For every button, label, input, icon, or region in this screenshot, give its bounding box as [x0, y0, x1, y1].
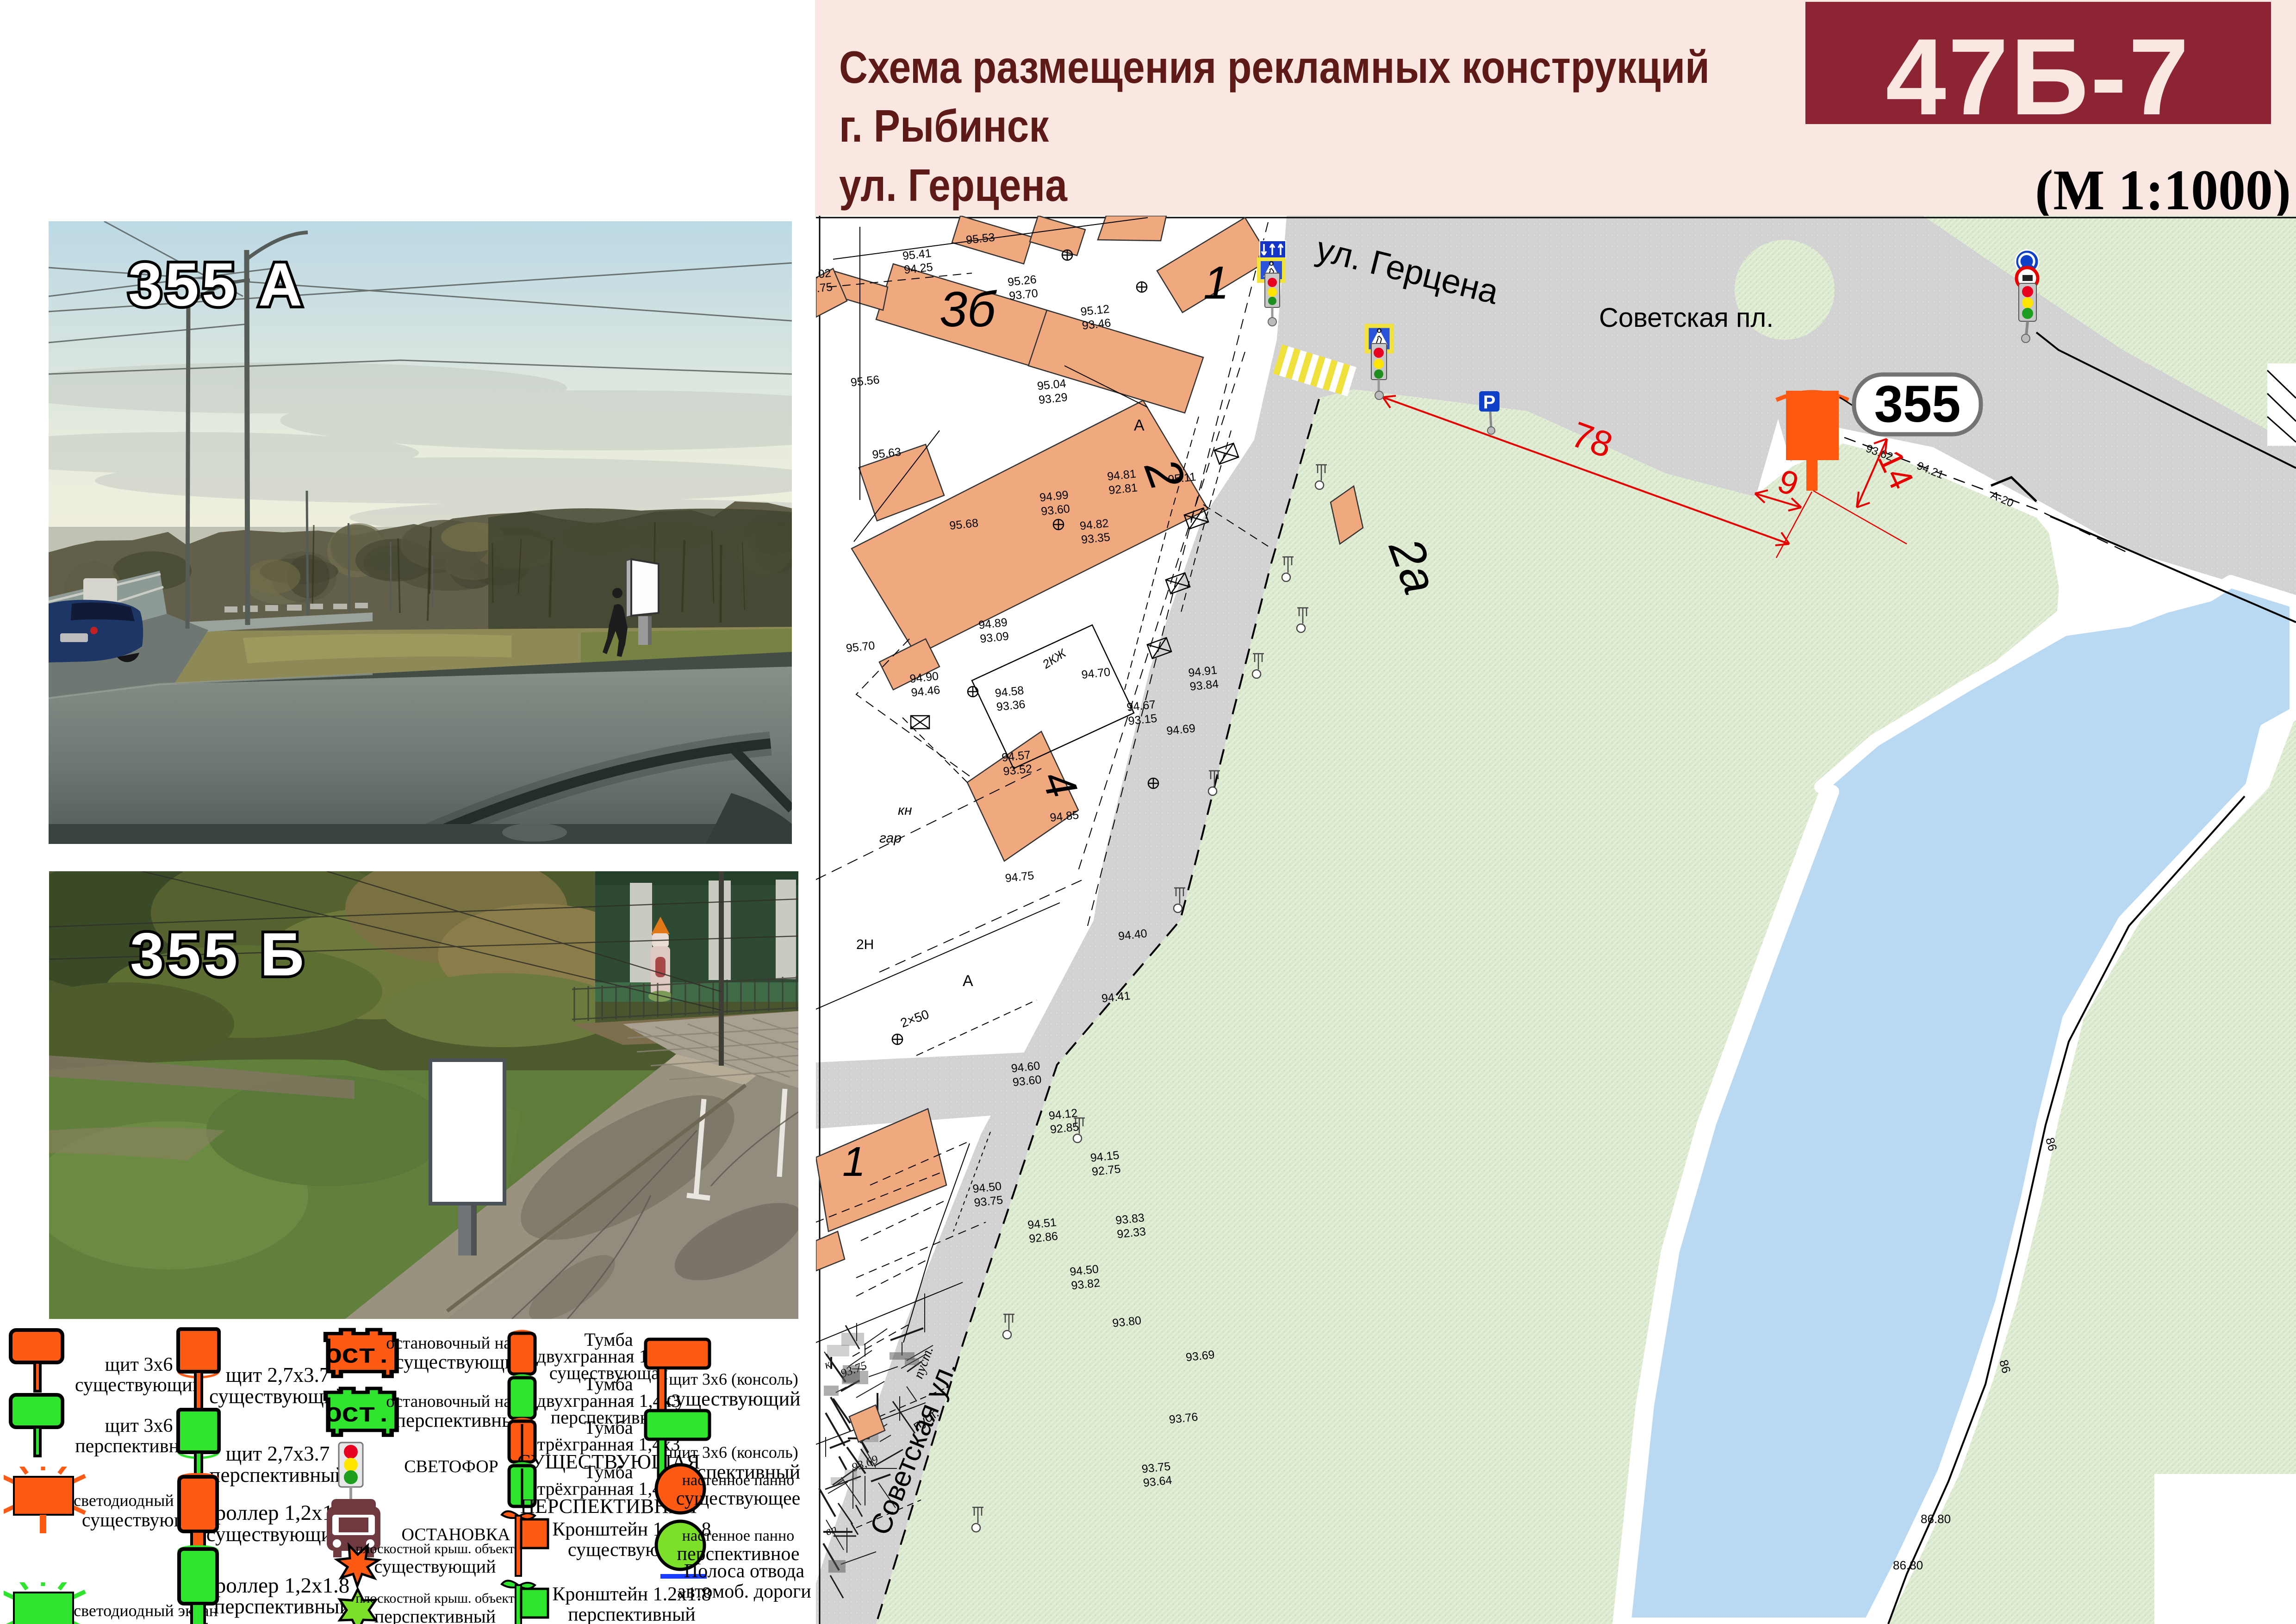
svg-text:гар: гар — [879, 831, 902, 846]
svg-text:1: 1 — [842, 1139, 865, 1185]
svg-text:1: 1 — [1203, 257, 1229, 309]
svg-text:P: P — [1483, 392, 1496, 412]
svg-text:кн: кн — [898, 803, 912, 818]
svg-text:А: А — [963, 972, 973, 990]
svg-text:А: А — [1134, 417, 1145, 434]
svg-text:Советская пл.: Советская пл. — [1599, 303, 1773, 333]
svg-text:355: 355 — [1874, 375, 1961, 433]
svg-text:2Н: 2Н — [856, 937, 874, 952]
svg-text:86.80: 86.80 — [1893, 1558, 1923, 1572]
svg-text:355 А: 355 А — [128, 250, 305, 319]
svg-text:3б: 3б — [940, 281, 997, 337]
svg-text:355 Б: 355 Б — [130, 920, 307, 988]
svg-text:86.80: 86.80 — [1921, 1512, 1951, 1526]
